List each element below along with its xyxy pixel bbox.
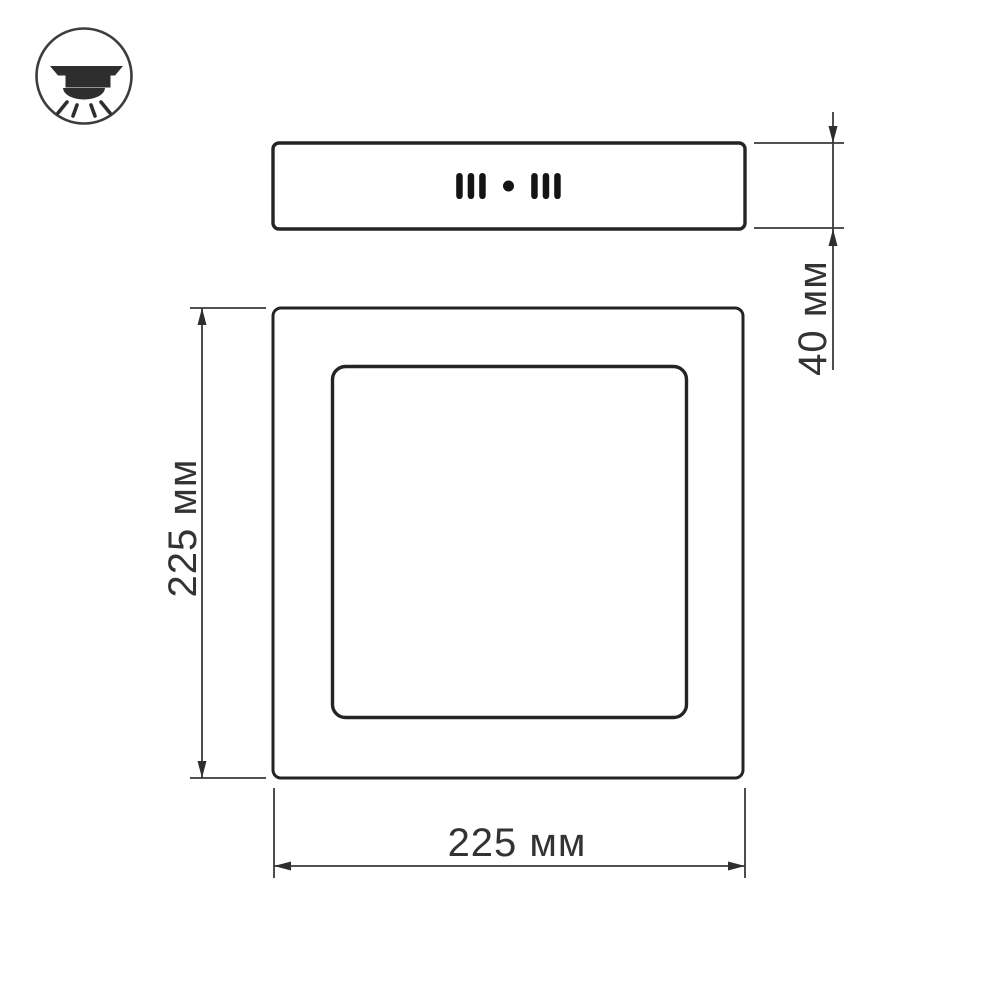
light-ray-icon [91, 105, 95, 116]
arrowhead-right-icon [728, 862, 745, 871]
dimension-label-width: 225 мм [448, 821, 587, 865]
vent-slot [479, 173, 486, 199]
arrowhead-up-icon [829, 229, 838, 246]
dimension-drawing: 40 мм 225 мм 225 мм [0, 0, 1000, 1000]
arrowhead-down-icon [829, 126, 838, 143]
light-ray-icon [58, 102, 67, 113]
arrowhead-left-icon [274, 862, 291, 871]
vent-slot [456, 173, 463, 199]
icon-body [66, 75, 111, 88]
front-view [273, 308, 743, 778]
front-view-inner-square [333, 367, 687, 718]
vent-slot [543, 173, 550, 199]
drawing-svg: 40 мм 225 мм 225 мм [0, 0, 1000, 1000]
vent-slot [554, 173, 561, 199]
vent-slot [531, 173, 538, 199]
light-ray-icon [101, 102, 110, 113]
dimension-label-side: 225 мм [161, 459, 205, 598]
dimension-width: 225 мм [274, 788, 745, 878]
center-dot [503, 181, 514, 192]
dimension-label-height: 40 мм [791, 260, 835, 376]
dimension-side: 225 мм [161, 308, 266, 778]
icon-lens-dome [63, 88, 105, 100]
arrowhead-down-icon [198, 761, 207, 778]
front-view-outer-square [273, 308, 743, 778]
light-ray-icon [73, 105, 77, 116]
dimension-height: 40 мм [754, 112, 844, 376]
downlight-icon [37, 29, 132, 124]
vent-slot [468, 173, 475, 199]
arrowhead-up-icon [198, 308, 207, 325]
side-view [273, 143, 745, 229]
icon-flange [50, 66, 123, 76]
